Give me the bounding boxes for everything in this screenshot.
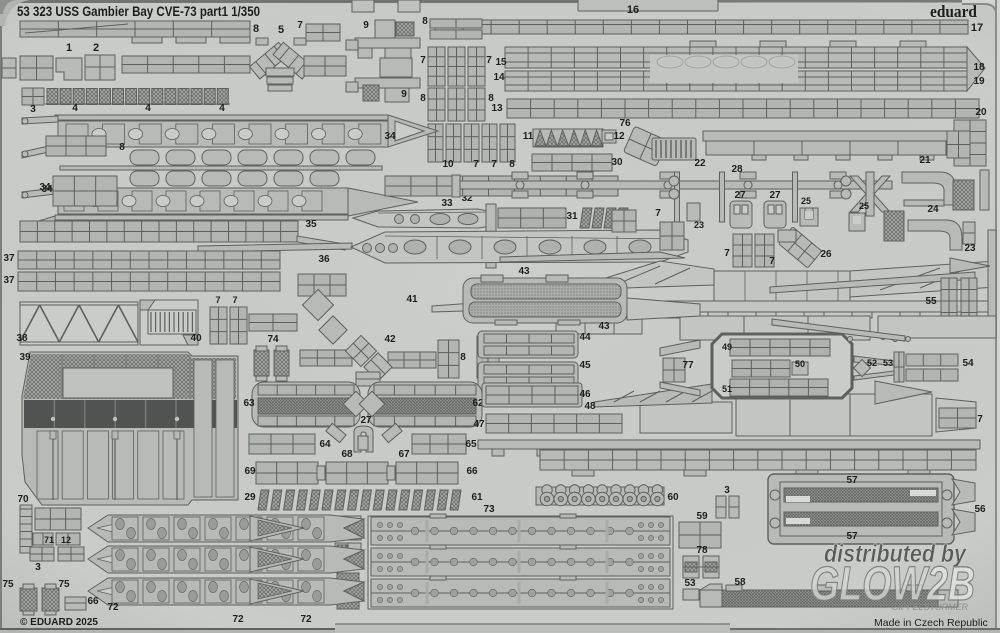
svg-text:27: 27 bbox=[769, 190, 781, 201]
svg-text:67: 67 bbox=[398, 449, 410, 460]
svg-text:3: 3 bbox=[724, 485, 730, 496]
svg-text:34: 34 bbox=[41, 184, 53, 195]
svg-text:51: 51 bbox=[722, 384, 732, 394]
svg-text:53 323 USS Gambier Bay CVE-73: 53 323 USS Gambier Bay CVE-73 part1 1/35… bbox=[17, 4, 260, 19]
svg-text:27: 27 bbox=[360, 415, 372, 426]
svg-text:Made in Czech Republic: Made in Czech Republic bbox=[874, 617, 988, 629]
svg-text:65: 65 bbox=[465, 439, 477, 450]
svg-text:28: 28 bbox=[731, 164, 743, 175]
svg-text:7: 7 bbox=[491, 159, 497, 170]
svg-text:38: 38 bbox=[16, 333, 28, 344]
svg-text:12: 12 bbox=[613, 131, 625, 142]
svg-text:14: 14 bbox=[493, 72, 505, 83]
svg-text:73: 73 bbox=[483, 504, 495, 515]
svg-text:24: 24 bbox=[927, 204, 939, 215]
svg-text:78: 78 bbox=[696, 545, 708, 556]
svg-text:7: 7 bbox=[473, 159, 479, 170]
svg-text:43: 43 bbox=[518, 266, 530, 277]
svg-text:75: 75 bbox=[2, 579, 14, 590]
svg-text:61: 61 bbox=[471, 492, 483, 503]
svg-text:41: 41 bbox=[406, 294, 418, 305]
svg-text:7: 7 bbox=[977, 414, 983, 425]
svg-text:70: 70 bbox=[17, 494, 29, 505]
svg-text:71: 71 bbox=[44, 535, 54, 545]
svg-text:47: 47 bbox=[473, 419, 485, 430]
svg-text:33: 33 bbox=[441, 198, 453, 209]
svg-text:72: 72 bbox=[232, 614, 244, 625]
svg-text:7: 7 bbox=[486, 55, 492, 66]
svg-text:74: 74 bbox=[267, 334, 279, 345]
svg-text:7: 7 bbox=[297, 20, 303, 31]
svg-text:7: 7 bbox=[420, 55, 426, 66]
svg-text:50: 50 bbox=[795, 359, 805, 369]
svg-text:76: 76 bbox=[619, 118, 631, 129]
svg-text:23: 23 bbox=[964, 243, 976, 254]
svg-text:23: 23 bbox=[694, 220, 704, 230]
svg-text:63: 63 bbox=[243, 398, 255, 409]
svg-text:36: 36 bbox=[318, 254, 330, 265]
svg-text:4: 4 bbox=[72, 103, 78, 114]
svg-text:64: 64 bbox=[319, 439, 331, 450]
svg-text:75: 75 bbox=[58, 579, 70, 590]
svg-text:69: 69 bbox=[244, 466, 256, 477]
svg-text:20: 20 bbox=[975, 107, 987, 118]
svg-text:72: 72 bbox=[300, 614, 312, 625]
svg-text:66: 66 bbox=[466, 466, 478, 477]
svg-text:66: 66 bbox=[87, 596, 99, 607]
svg-text:7: 7 bbox=[215, 295, 220, 305]
svg-text:8: 8 bbox=[253, 23, 259, 35]
svg-text:eduard: eduard bbox=[930, 2, 977, 21]
svg-text:10: 10 bbox=[442, 159, 454, 170]
svg-text:19: 19 bbox=[973, 76, 985, 87]
svg-text:58: 58 bbox=[734, 577, 746, 588]
svg-text:29: 29 bbox=[244, 492, 256, 503]
svg-text:8: 8 bbox=[460, 352, 466, 363]
svg-text:4: 4 bbox=[145, 103, 151, 114]
svg-text:21: 21 bbox=[919, 155, 931, 166]
svg-text:2: 2 bbox=[93, 42, 99, 54]
svg-text:68: 68 bbox=[341, 449, 353, 460]
svg-text:44: 44 bbox=[579, 332, 591, 343]
svg-text:43: 43 bbox=[598, 321, 610, 332]
svg-text:30: 30 bbox=[611, 157, 623, 168]
svg-text:57: 57 bbox=[846, 475, 858, 486]
svg-text:35: 35 bbox=[305, 219, 317, 230]
svg-text:48: 48 bbox=[584, 401, 596, 412]
svg-text:59: 59 bbox=[696, 511, 708, 522]
svg-text:11: 11 bbox=[523, 131, 534, 142]
svg-text:53: 53 bbox=[883, 358, 893, 368]
svg-text:52: 52 bbox=[867, 358, 877, 368]
svg-text:9: 9 bbox=[401, 89, 407, 100]
svg-text:56: 56 bbox=[974, 504, 986, 515]
svg-text:7: 7 bbox=[232, 295, 237, 305]
svg-text:13: 13 bbox=[491, 103, 503, 114]
svg-text:8: 8 bbox=[509, 159, 515, 170]
svg-text:77: 77 bbox=[682, 360, 694, 371]
svg-text:31: 31 bbox=[566, 211, 578, 222]
svg-text:8: 8 bbox=[422, 16, 428, 27]
svg-text:39: 39 bbox=[19, 352, 31, 363]
svg-text:GIPFELSTURMER: GIPFELSTURMER bbox=[891, 602, 968, 612]
svg-text:16: 16 bbox=[627, 4, 639, 16]
svg-text:12: 12 bbox=[61, 535, 71, 545]
svg-text:7: 7 bbox=[655, 208, 661, 219]
svg-text:8: 8 bbox=[420, 93, 426, 104]
svg-text:60: 60 bbox=[667, 492, 679, 503]
svg-text:46: 46 bbox=[579, 389, 591, 400]
svg-text:7: 7 bbox=[724, 248, 730, 259]
svg-text:18: 18 bbox=[973, 62, 985, 73]
svg-text:3: 3 bbox=[30, 104, 36, 115]
svg-text:49: 49 bbox=[722, 342, 732, 352]
svg-text:45: 45 bbox=[579, 360, 591, 371]
svg-text:5: 5 bbox=[278, 24, 284, 36]
svg-text:3: 3 bbox=[35, 562, 41, 573]
svg-text:1: 1 bbox=[66, 42, 72, 54]
svg-text:25: 25 bbox=[859, 201, 869, 211]
svg-text:7: 7 bbox=[769, 256, 775, 267]
svg-text:40: 40 bbox=[190, 333, 202, 344]
svg-text:72: 72 bbox=[107, 602, 119, 613]
svg-text:25: 25 bbox=[801, 196, 811, 206]
svg-text:37: 37 bbox=[3, 253, 15, 264]
svg-text:8: 8 bbox=[119, 142, 125, 153]
svg-text:34: 34 bbox=[384, 131, 396, 142]
svg-text:55: 55 bbox=[925, 296, 937, 307]
svg-text:37: 37 bbox=[3, 275, 15, 286]
svg-text:22: 22 bbox=[694, 158, 706, 169]
svg-text:54: 54 bbox=[962, 358, 974, 369]
svg-text:42: 42 bbox=[384, 334, 396, 345]
svg-text:26: 26 bbox=[820, 249, 832, 260]
svg-text:9: 9 bbox=[363, 20, 369, 31]
svg-text:27: 27 bbox=[734, 190, 746, 201]
svg-text:15: 15 bbox=[495, 57, 507, 68]
svg-text:© EDUARD 2025: © EDUARD 2025 bbox=[20, 617, 98, 628]
svg-text:53: 53 bbox=[684, 578, 696, 589]
svg-text:17: 17 bbox=[971, 22, 983, 34]
svg-text:4: 4 bbox=[219, 103, 225, 114]
